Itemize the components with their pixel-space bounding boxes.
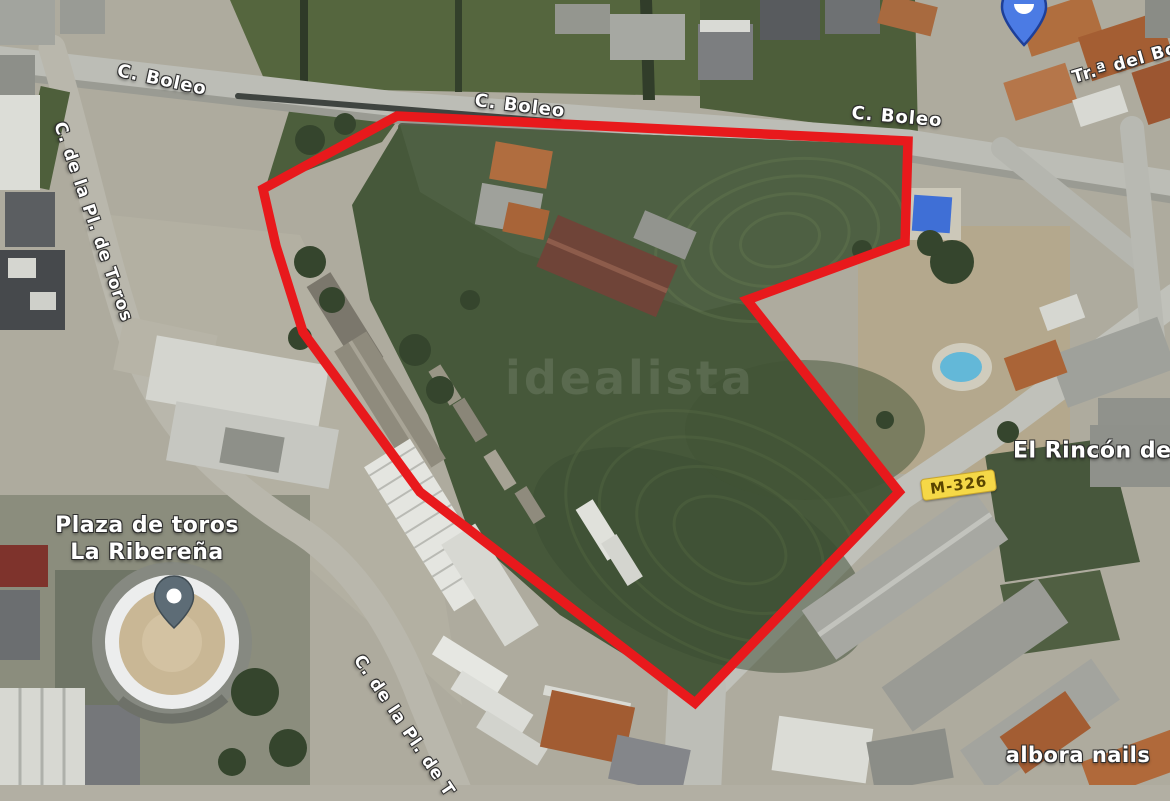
- swimming-pool-kidney: [940, 352, 982, 382]
- watermark: idealista: [505, 351, 755, 405]
- swimming-pool-rect: [912, 195, 952, 234]
- place-label-el-rincon[interactable]: El Rincón de T: [1013, 439, 1170, 464]
- plaza-label-line1: Plaza de toros: [55, 512, 239, 539]
- plaza-label-line2: La Ribereña: [55, 539, 239, 566]
- place-label-albora-nails[interactable]: albora nails: [1006, 743, 1151, 767]
- pin-dot: [167, 589, 182, 604]
- place-label-plaza-de-toros[interactable]: Plaza de toros La Ribereña: [55, 512, 239, 566]
- poi-map-pin-blue[interactable]: [998, 0, 1050, 52]
- satellite-map: { "map": { "watermark": "idealista", "ro…: [0, 0, 1170, 785]
- plaza-map-pin[interactable]: [152, 574, 196, 634]
